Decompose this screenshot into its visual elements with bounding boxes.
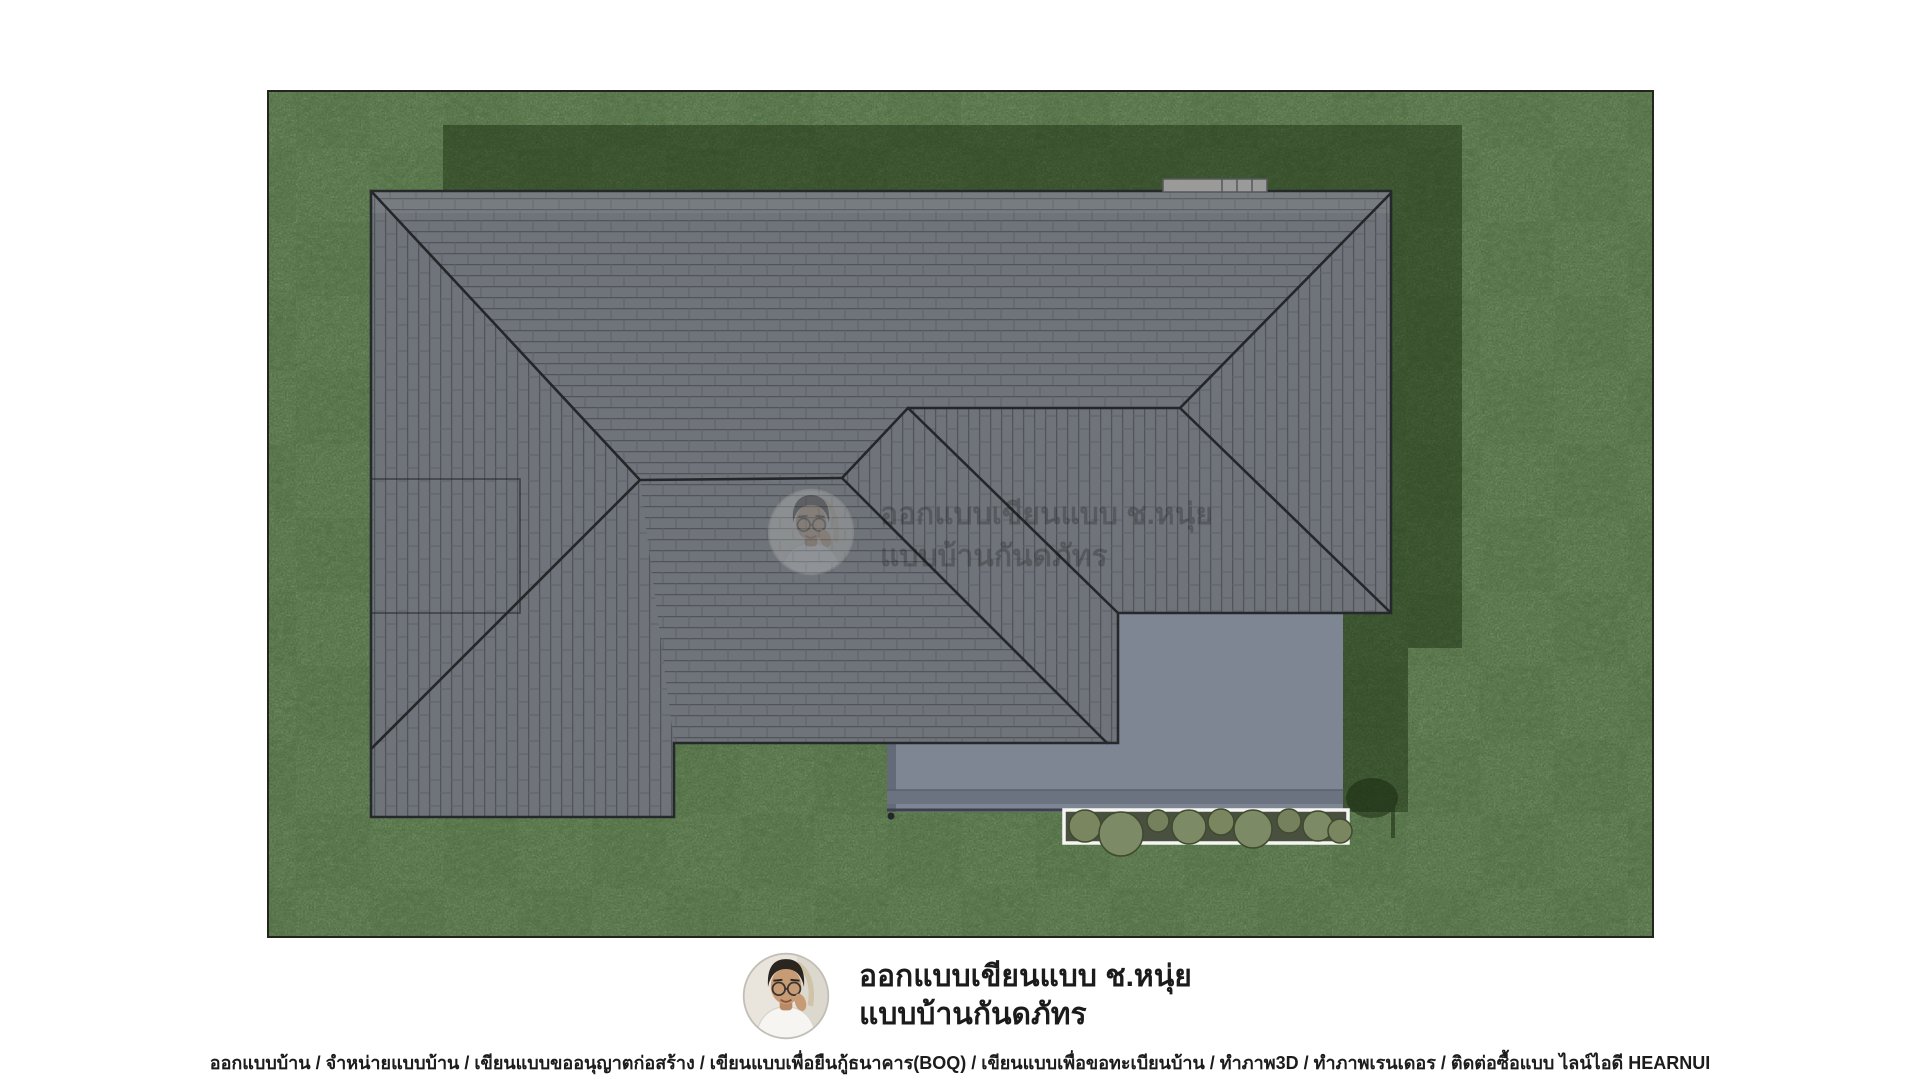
- shrub: [1172, 810, 1206, 844]
- brand-title-line2: แบบบ้านกันดภัทร: [859, 996, 1192, 1034]
- vent-louver: [1163, 179, 1267, 192]
- watermark-line1: ออกแบบเขียนแบบ ช.หนุ่ย: [880, 498, 1213, 533]
- shrub: [1328, 819, 1352, 843]
- brand-block: ออกแบบเขียนแบบ ช.หนุ่ย แบบบ้านกันดภัทร: [741, 948, 1192, 1044]
- brand-text: ออกแบบเขียนแบบ ช.หนุ่ย แบบบ้านกันดภัทร: [859, 958, 1192, 1034]
- shrub: [1208, 809, 1234, 835]
- shrub: [1099, 812, 1143, 856]
- shrub: [1234, 810, 1272, 848]
- shrub: [1069, 810, 1101, 842]
- footer-services-text: ออกแบบบ้าน / จำหน่ายแบบบ้าน / เขียนแบบขอ…: [0, 1048, 1920, 1077]
- brand-avatar: [741, 951, 831, 1041]
- brand-title-line1: ออกแบบเขียนแบบ ช.หนุ่ย: [859, 958, 1192, 996]
- shrub: [1277, 809, 1301, 833]
- watermark-line2: แบบบ้านกันดภัทร: [880, 540, 1108, 573]
- poster-canvas: ออกแบบเขียนแบบ ช.หนุ่ย แบบบ้านกันดภัทร อ…: [0, 0, 1920, 1080]
- downspout-dot: [888, 813, 895, 820]
- shrub: [1147, 810, 1169, 832]
- aerial-house-render: ออกแบบเขียนแบบ ช.หนุ่ย แบบบ้านกันดภัทร: [0, 0, 1920, 1080]
